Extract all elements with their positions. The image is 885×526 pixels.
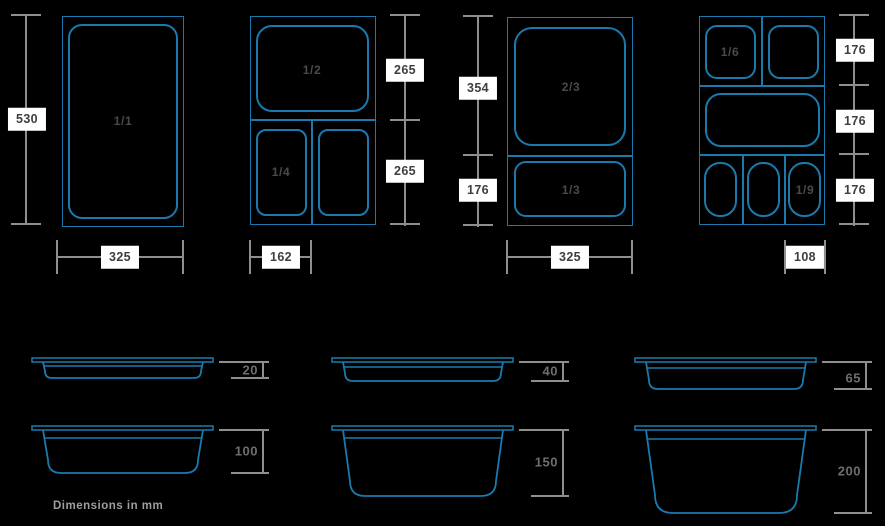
dim-label-108: 108 xyxy=(786,246,824,269)
depth-label-200: 200 xyxy=(838,465,861,478)
dim-tick xyxy=(839,223,869,225)
pan-1-1-label: 1/1 xyxy=(114,115,132,127)
dim-label-176-left: 176 xyxy=(459,179,497,202)
pan-1-6-inner-rim xyxy=(768,25,819,79)
depth-dim-line-65 xyxy=(865,361,867,390)
dim-tick xyxy=(463,154,493,156)
dim-tick xyxy=(390,14,420,16)
dim-tick xyxy=(839,153,869,155)
pan-divider xyxy=(742,154,744,225)
dim-tick xyxy=(56,240,58,274)
dim-tick xyxy=(390,223,420,225)
dim-tick xyxy=(310,240,312,274)
dim-tick xyxy=(11,14,41,16)
pan-profile-depth-200 xyxy=(634,425,818,516)
dim-label-176-2: 176 xyxy=(836,110,874,133)
dim-label-265-top: 265 xyxy=(386,59,424,82)
pan-profile-depth-65 xyxy=(634,357,818,392)
dim-tick xyxy=(839,84,869,86)
depth-label-100: 100 xyxy=(235,445,258,458)
pan-1-9-inner-rim xyxy=(747,162,780,217)
depth-dim-line-150 xyxy=(562,429,564,497)
dim-tick xyxy=(11,223,41,225)
pan-1-4-inner-rim xyxy=(318,129,369,216)
pan-divider xyxy=(311,120,313,225)
dim-tick xyxy=(463,224,493,226)
pan-profile-depth-100 xyxy=(31,425,215,476)
depth-label-20: 20 xyxy=(243,364,258,377)
pan-divider xyxy=(507,155,633,157)
pan-divider xyxy=(250,119,376,121)
pan-1-9-label: 1/9 xyxy=(796,184,814,196)
dim-label-162: 162 xyxy=(262,246,300,269)
pan-divider xyxy=(699,154,825,156)
dim-tick xyxy=(506,240,508,274)
dim-label-530: 530 xyxy=(8,108,46,131)
dimensions-note: Dimensions in mm xyxy=(53,501,163,513)
pan-profile-depth-150 xyxy=(331,425,515,499)
pan-1-9-inner-rim xyxy=(704,162,737,217)
pan-1-6-label: 1/6 xyxy=(721,46,739,58)
dim-tick xyxy=(182,240,184,274)
depth-dim-line-200 xyxy=(865,429,867,514)
depth-label-150: 150 xyxy=(535,456,558,469)
dim-label-176-1: 176 xyxy=(836,39,874,62)
pan-divider xyxy=(699,85,825,87)
depth-dim-line-20 xyxy=(262,361,264,379)
pan-profile-depth-20 xyxy=(31,357,215,381)
pan-divider xyxy=(761,16,763,85)
pan-2-3-label: 2/3 xyxy=(562,81,580,93)
dim-label-325-b: 325 xyxy=(551,246,589,269)
depth-label-65: 65 xyxy=(846,372,861,385)
pan-profile-depth-40 xyxy=(331,357,515,384)
pan-divider xyxy=(784,154,786,225)
gastronorm-size-diagram: 1/1 530 325 1/2 1/4 265 265 162 2/3 1/3 … xyxy=(0,0,885,526)
dim-label-354: 354 xyxy=(459,77,497,100)
depth-dim-line-100 xyxy=(262,429,264,474)
dim-tick xyxy=(631,240,633,274)
pan-1-3-wide-inner-rim xyxy=(705,93,820,147)
dim-label-325-a: 325 xyxy=(101,246,139,269)
dim-tick xyxy=(390,119,420,121)
pan-1-4-label: 1/4 xyxy=(272,166,290,178)
dim-tick xyxy=(839,14,869,16)
depth-label-40: 40 xyxy=(543,365,558,378)
depth-dim-line-40 xyxy=(562,361,564,382)
pan-1-2-label: 1/2 xyxy=(303,64,321,76)
dim-tick xyxy=(463,15,493,17)
dim-label-265-bottom: 265 xyxy=(386,160,424,183)
dim-label-176-3: 176 xyxy=(836,179,874,202)
dim-tick xyxy=(824,240,826,274)
pan-1-3-label: 1/3 xyxy=(562,184,580,196)
dim-tick xyxy=(249,240,251,274)
